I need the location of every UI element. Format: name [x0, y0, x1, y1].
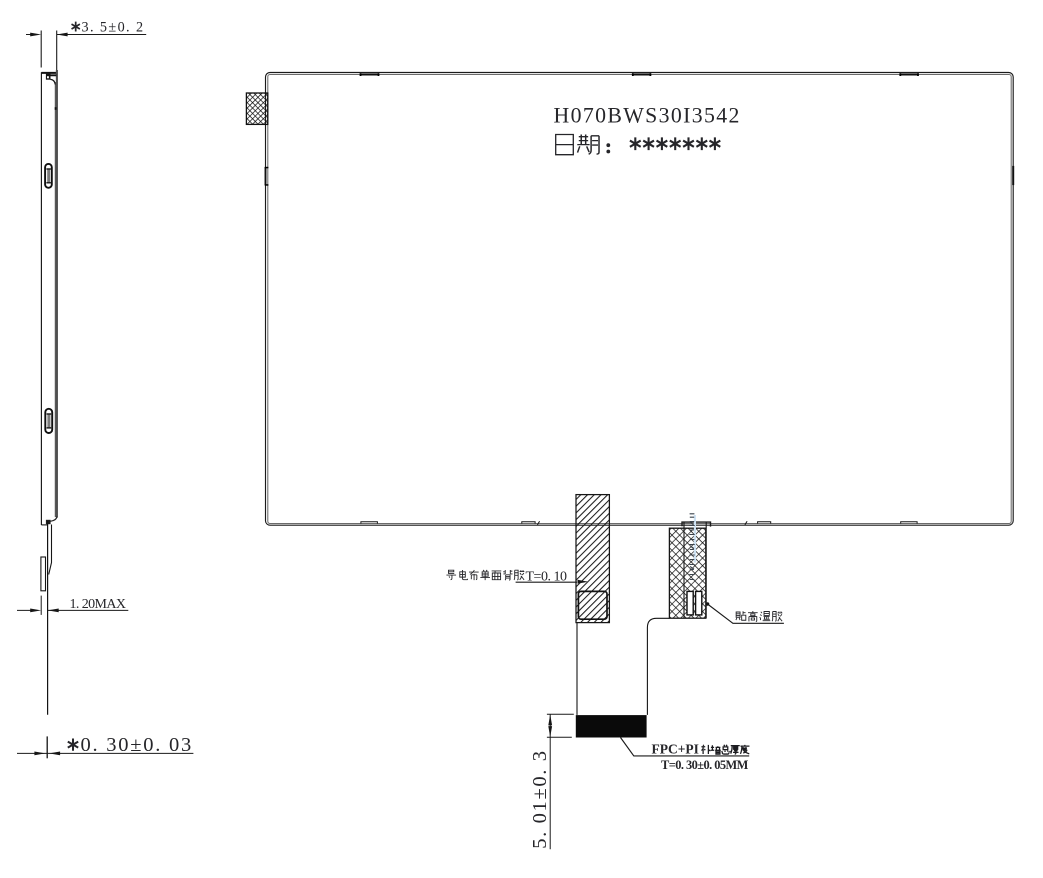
svg-text:5. 01±0. 3: 5. 01±0. 3 — [529, 749, 551, 849]
svg-text:T=0. 30±0. 05MM: T=0. 30±0. 05MM — [661, 758, 749, 772]
svg-text:1. 20MAX: 1. 20MAX — [70, 597, 126, 612]
svg-text:H070BWS30I3542: H070BWS30I3542 — [554, 104, 741, 128]
svg-text:3. 5±0. 2: 3. 5±0. 2 — [82, 19, 145, 35]
svg-text:FPC+PI: FPC+PI — [652, 742, 699, 757]
svg-text:T=0. 10: T=0. 10 — [526, 570, 567, 585]
svg-text:0. 30±0. 03: 0. 30±0. 03 — [81, 734, 194, 756]
